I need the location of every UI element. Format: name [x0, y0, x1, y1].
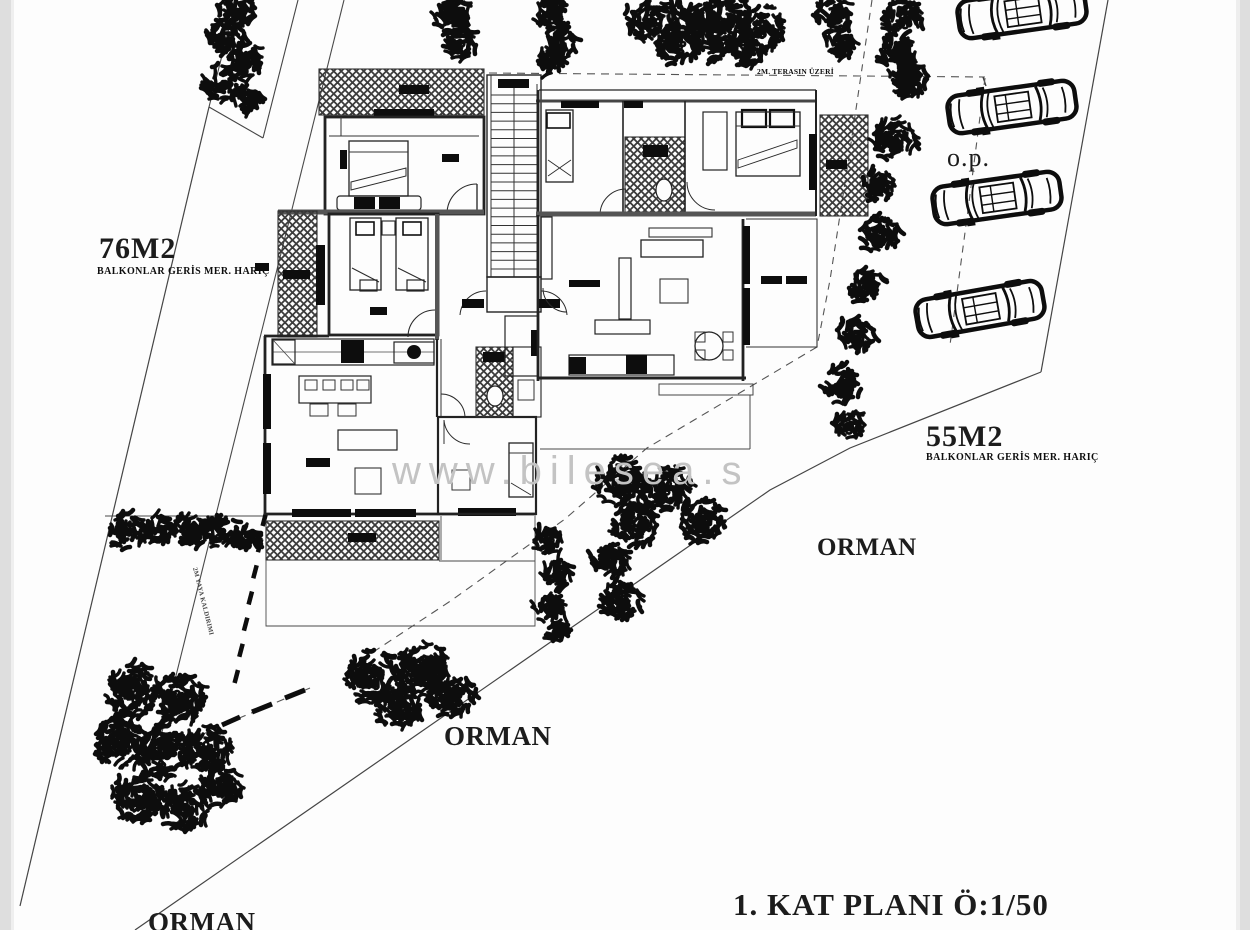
svg-text:www.bilesea.s: www.bilesea.s [391, 449, 749, 493]
svg-text:BALKONLAR GERİS MER. HARIÇ: BALKONLAR GERİS MER. HARIÇ [97, 265, 270, 277]
svg-text:BALKONLAR GERİS MER. HARIÇ: BALKONLAR GERİS MER. HARIÇ [926, 451, 1099, 463]
svg-text:ORMAN: ORMAN [148, 907, 255, 930]
svg-text:55M2: 55M2 [926, 420, 1003, 453]
svg-text:2M. TERASIN ÜZERİ: 2M. TERASIN ÜZERİ [757, 66, 834, 76]
svg-text:1. KAT PLANI Ö:1/50: 1. KAT PLANI Ö:1/50 [733, 887, 1049, 922]
svg-text:ORMAN: ORMAN [817, 534, 917, 561]
svg-text:ORMAN: ORMAN [444, 721, 551, 751]
svg-text:o.p.: o.p. [947, 143, 990, 172]
svg-text:76M2: 76M2 [99, 232, 176, 265]
